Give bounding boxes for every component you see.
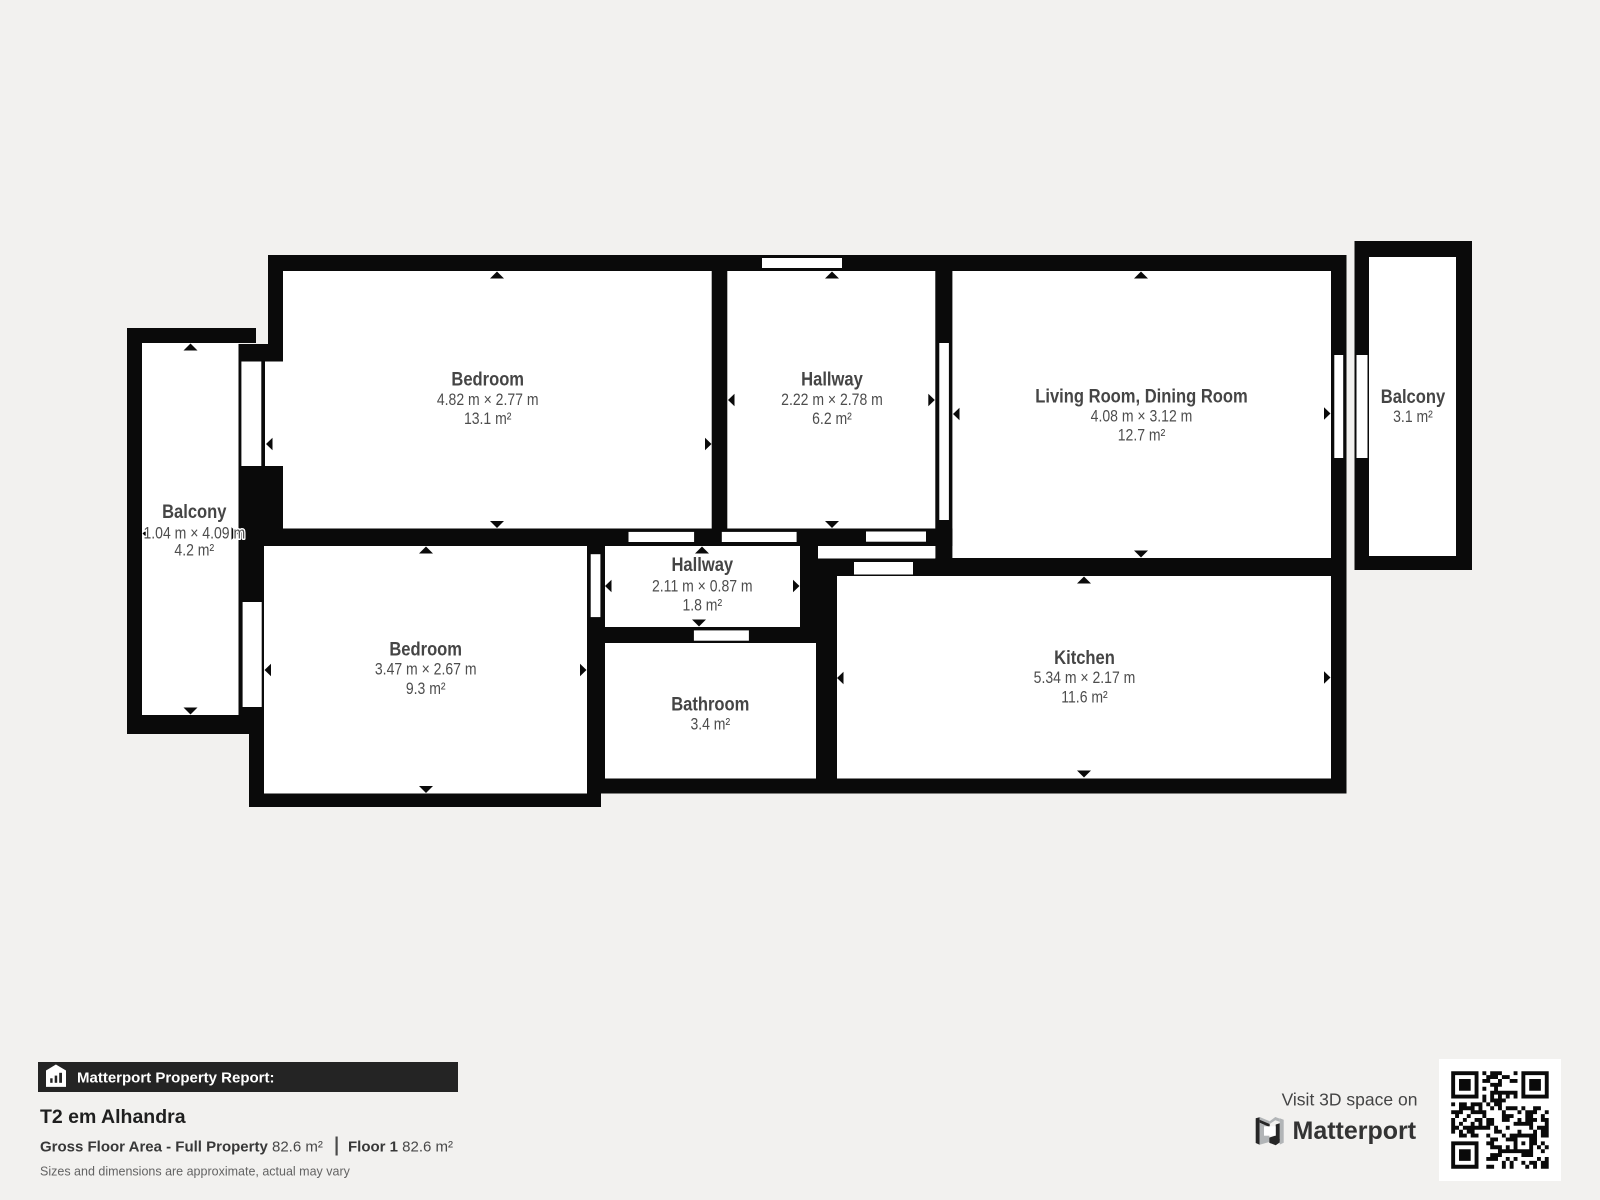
svg-text:Hallway: Hallway: [801, 368, 863, 390]
svg-text:1.8 m²: 1.8 m²: [682, 596, 722, 614]
svg-text:3.47 m × 2.67 m: 3.47 m × 2.67 m: [375, 660, 477, 678]
svg-text:Balcony: Balcony: [162, 501, 226, 523]
svg-text:4.08 m × 3.12 m: 4.08 m × 3.12 m: [1091, 407, 1193, 425]
svg-text:Hallway: Hallway: [671, 554, 733, 576]
svg-text:12.7 m²: 12.7 m²: [1118, 426, 1165, 444]
svg-text:Sizes and dimensions are appro: Sizes and dimensions are approximate, ac…: [40, 1165, 351, 1179]
svg-text:3.4 m²: 3.4 m²: [690, 715, 730, 733]
svg-text:Bathroom: Bathroom: [671, 693, 749, 715]
svg-text:2.22 m × 2.78 m: 2.22 m × 2.78 m: [781, 391, 883, 409]
svg-text:Gross Floor Area - Full Proper: Gross Floor Area - Full Property 82.6 m²: [40, 1139, 323, 1156]
svg-text:Bedroom: Bedroom: [389, 638, 462, 660]
svg-text:Living Room, Dining Room: Living Room, Dining Room: [1035, 385, 1247, 407]
svg-text:9.3 m²: 9.3 m²: [406, 680, 446, 698]
svg-text:Bedroom: Bedroom: [451, 368, 524, 390]
svg-text:1.04 m × 4.09 m: 1.04 m × 4.09 m: [143, 525, 245, 543]
svg-text:Kitchen: Kitchen: [1054, 647, 1115, 669]
svg-text:5.34 m × 2.17 m: 5.34 m × 2.17 m: [1034, 669, 1136, 687]
svg-text:Matterport Property Report:: Matterport Property Report:: [77, 1070, 275, 1087]
svg-text:Floor 1 82.6 m²: Floor 1 82.6 m²: [348, 1139, 453, 1156]
svg-text:13.1 m²: 13.1 m²: [464, 410, 511, 428]
svg-text:Visit 3D space on: Visit 3D space on: [1282, 1090, 1418, 1110]
svg-text:4.2 m²: 4.2 m²: [174, 541, 214, 559]
svg-text:3.1 m²: 3.1 m²: [1393, 408, 1433, 426]
svg-text:2.11 m × 0.87 m: 2.11 m × 0.87 m: [652, 577, 753, 595]
svg-text:Balcony: Balcony: [1381, 386, 1445, 408]
svg-text:4.82 m × 2.77 m: 4.82 m × 2.77 m: [437, 391, 539, 409]
svg-text:6.2 m²: 6.2 m²: [812, 410, 852, 428]
svg-text:T2 em Alhandra: T2 em Alhandra: [40, 1106, 186, 1128]
svg-text:11.6 m²: 11.6 m²: [1061, 688, 1107, 706]
svg-text:Matterport: Matterport: [1293, 1117, 1417, 1145]
